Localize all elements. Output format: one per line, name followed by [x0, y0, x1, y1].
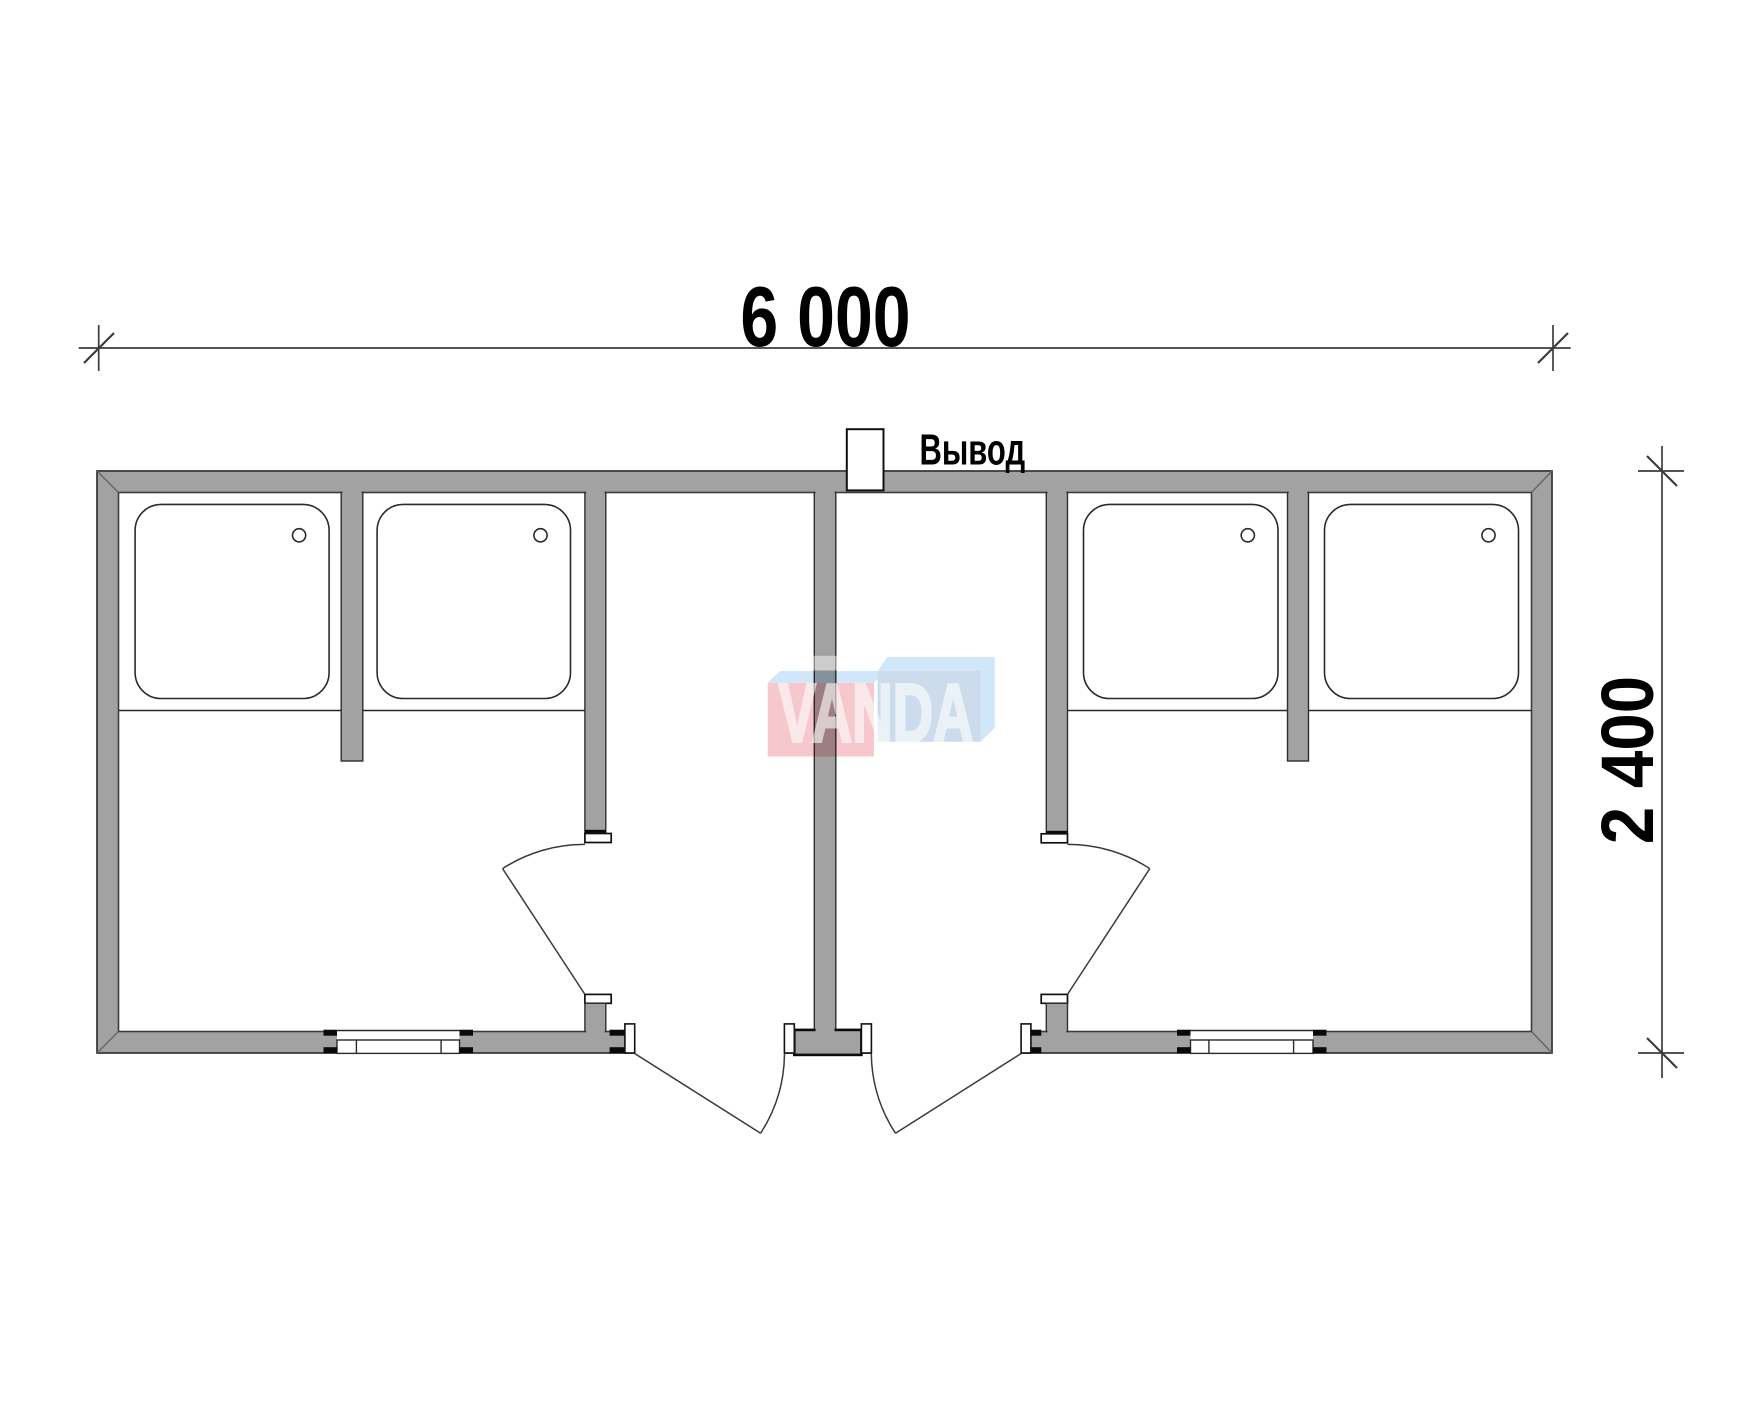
svg-text:Вывод: Вывод [920, 426, 1026, 475]
svg-text:6 000: 6 000 [740, 270, 910, 365]
svg-text:VANDA: VANDA [778, 668, 973, 761]
svg-text:2 400: 2 400 [1586, 676, 1669, 844]
